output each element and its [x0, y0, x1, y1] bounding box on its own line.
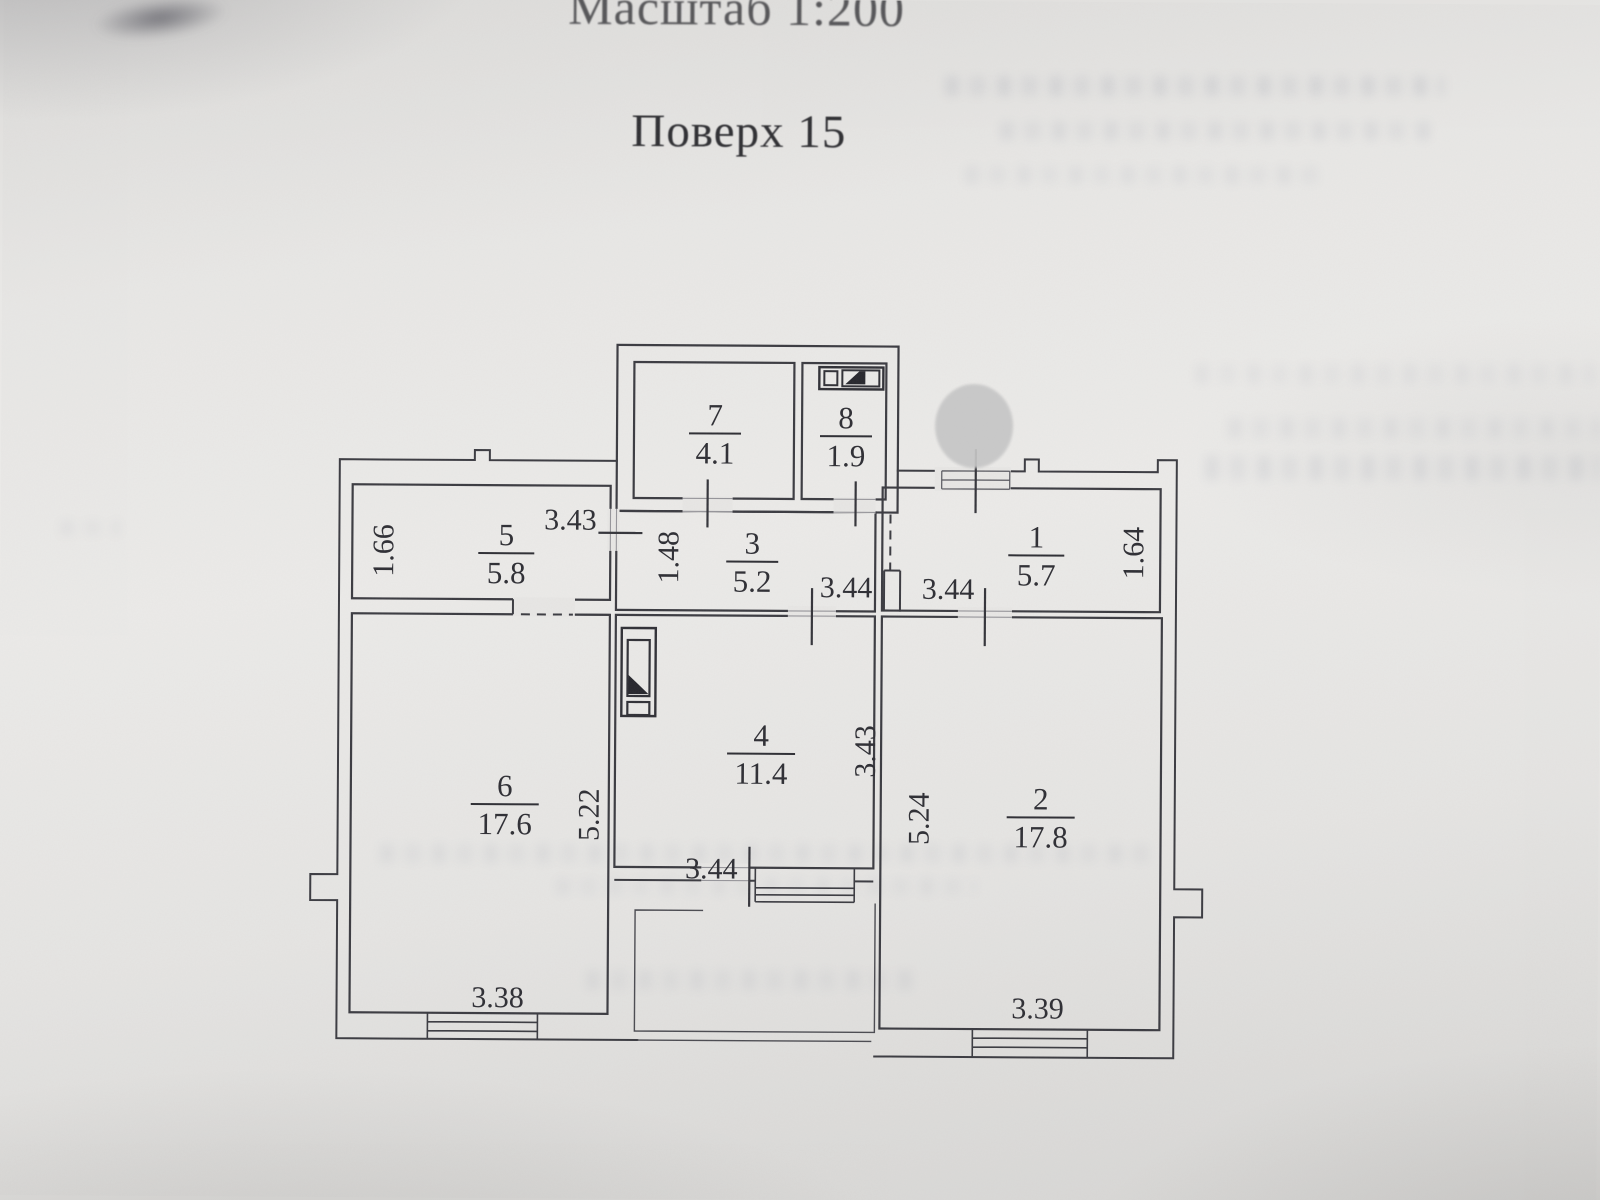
floor-plan: Масштаб 1:200 Поверх 15	[0, 0, 1600, 1200]
dim-room5-top: 3.43	[544, 503, 597, 536]
dim-room2-window: 3.39	[1011, 992, 1064, 1025]
dim-corridor-right: 3.44	[922, 573, 975, 606]
svg-text:6: 6	[497, 768, 513, 803]
room-label-3: 3 5.2	[726, 526, 778, 599]
dim-room6-height: 5.22	[573, 788, 606, 841]
ventilation-shaft-icon	[621, 628, 656, 716]
dim-room5-left: 1.66	[367, 524, 400, 577]
svg-text:5.7: 5.7	[1017, 557, 1056, 592]
scale-title: Масштаб 1:200	[568, 0, 905, 37]
svg-text:1: 1	[1029, 519, 1045, 554]
svg-text:8: 8	[838, 400, 854, 435]
room-label-4: 4 11.4	[727, 718, 795, 791]
room6-window	[427, 1013, 537, 1040]
svg-text:17.6: 17.6	[477, 806, 531, 841]
svg-text:1.9: 1.9	[826, 438, 865, 473]
dim-hall-passage: 1.48	[652, 531, 685, 584]
svg-text:7: 7	[707, 397, 723, 432]
dim-room4-bottom: 3.44	[685, 852, 738, 885]
room-label-6: 6 17.6	[471, 768, 539, 841]
dim-corridor-left: 3.44	[820, 571, 873, 604]
dim-room2-height: 5.24	[903, 792, 936, 845]
outer-wall-left	[309, 449, 641, 1040]
walls	[309, 343, 1205, 1058]
room-label-1: 1 5.7	[1008, 519, 1064, 592]
floor-title: Поверх 15	[631, 105, 846, 158]
room-label-7: 7 4.1	[689, 397, 741, 470]
svg-text:5: 5	[499, 517, 515, 552]
room2-window	[972, 1029, 1087, 1058]
svg-text:2: 2	[1033, 781, 1049, 816]
room-4-walls	[614, 615, 875, 869]
dim-room1-right: 1.64	[1117, 527, 1150, 580]
room-label-8: 8 1.9	[820, 400, 872, 473]
svg-text:3: 3	[744, 526, 760, 561]
scanned-page: Масштаб 1:200 Поверх 15	[0, 0, 1600, 1200]
svg-text:5.2: 5.2	[733, 564, 772, 599]
dim-room4-height: 3.43	[849, 725, 882, 778]
room-label-2: 2 17.8	[1006, 781, 1074, 854]
balcony-outline	[634, 902, 875, 1041]
paper-grain	[0, 0, 1600, 1200]
dim-room6-window: 3.38	[471, 981, 524, 1014]
svg-text:5.8: 5.8	[487, 555, 526, 590]
room-label-5: 5 5.8	[478, 517, 534, 590]
hall-partition-stub	[884, 571, 900, 612]
svg-text:4: 4	[753, 718, 769, 753]
svg-text:4.1: 4.1	[695, 435, 734, 470]
redaction-dot	[935, 384, 1014, 468]
fixture-icon-room8	[819, 367, 883, 389]
svg-text:11.4: 11.4	[734, 756, 788, 791]
svg-text:17.8: 17.8	[1013, 819, 1067, 854]
